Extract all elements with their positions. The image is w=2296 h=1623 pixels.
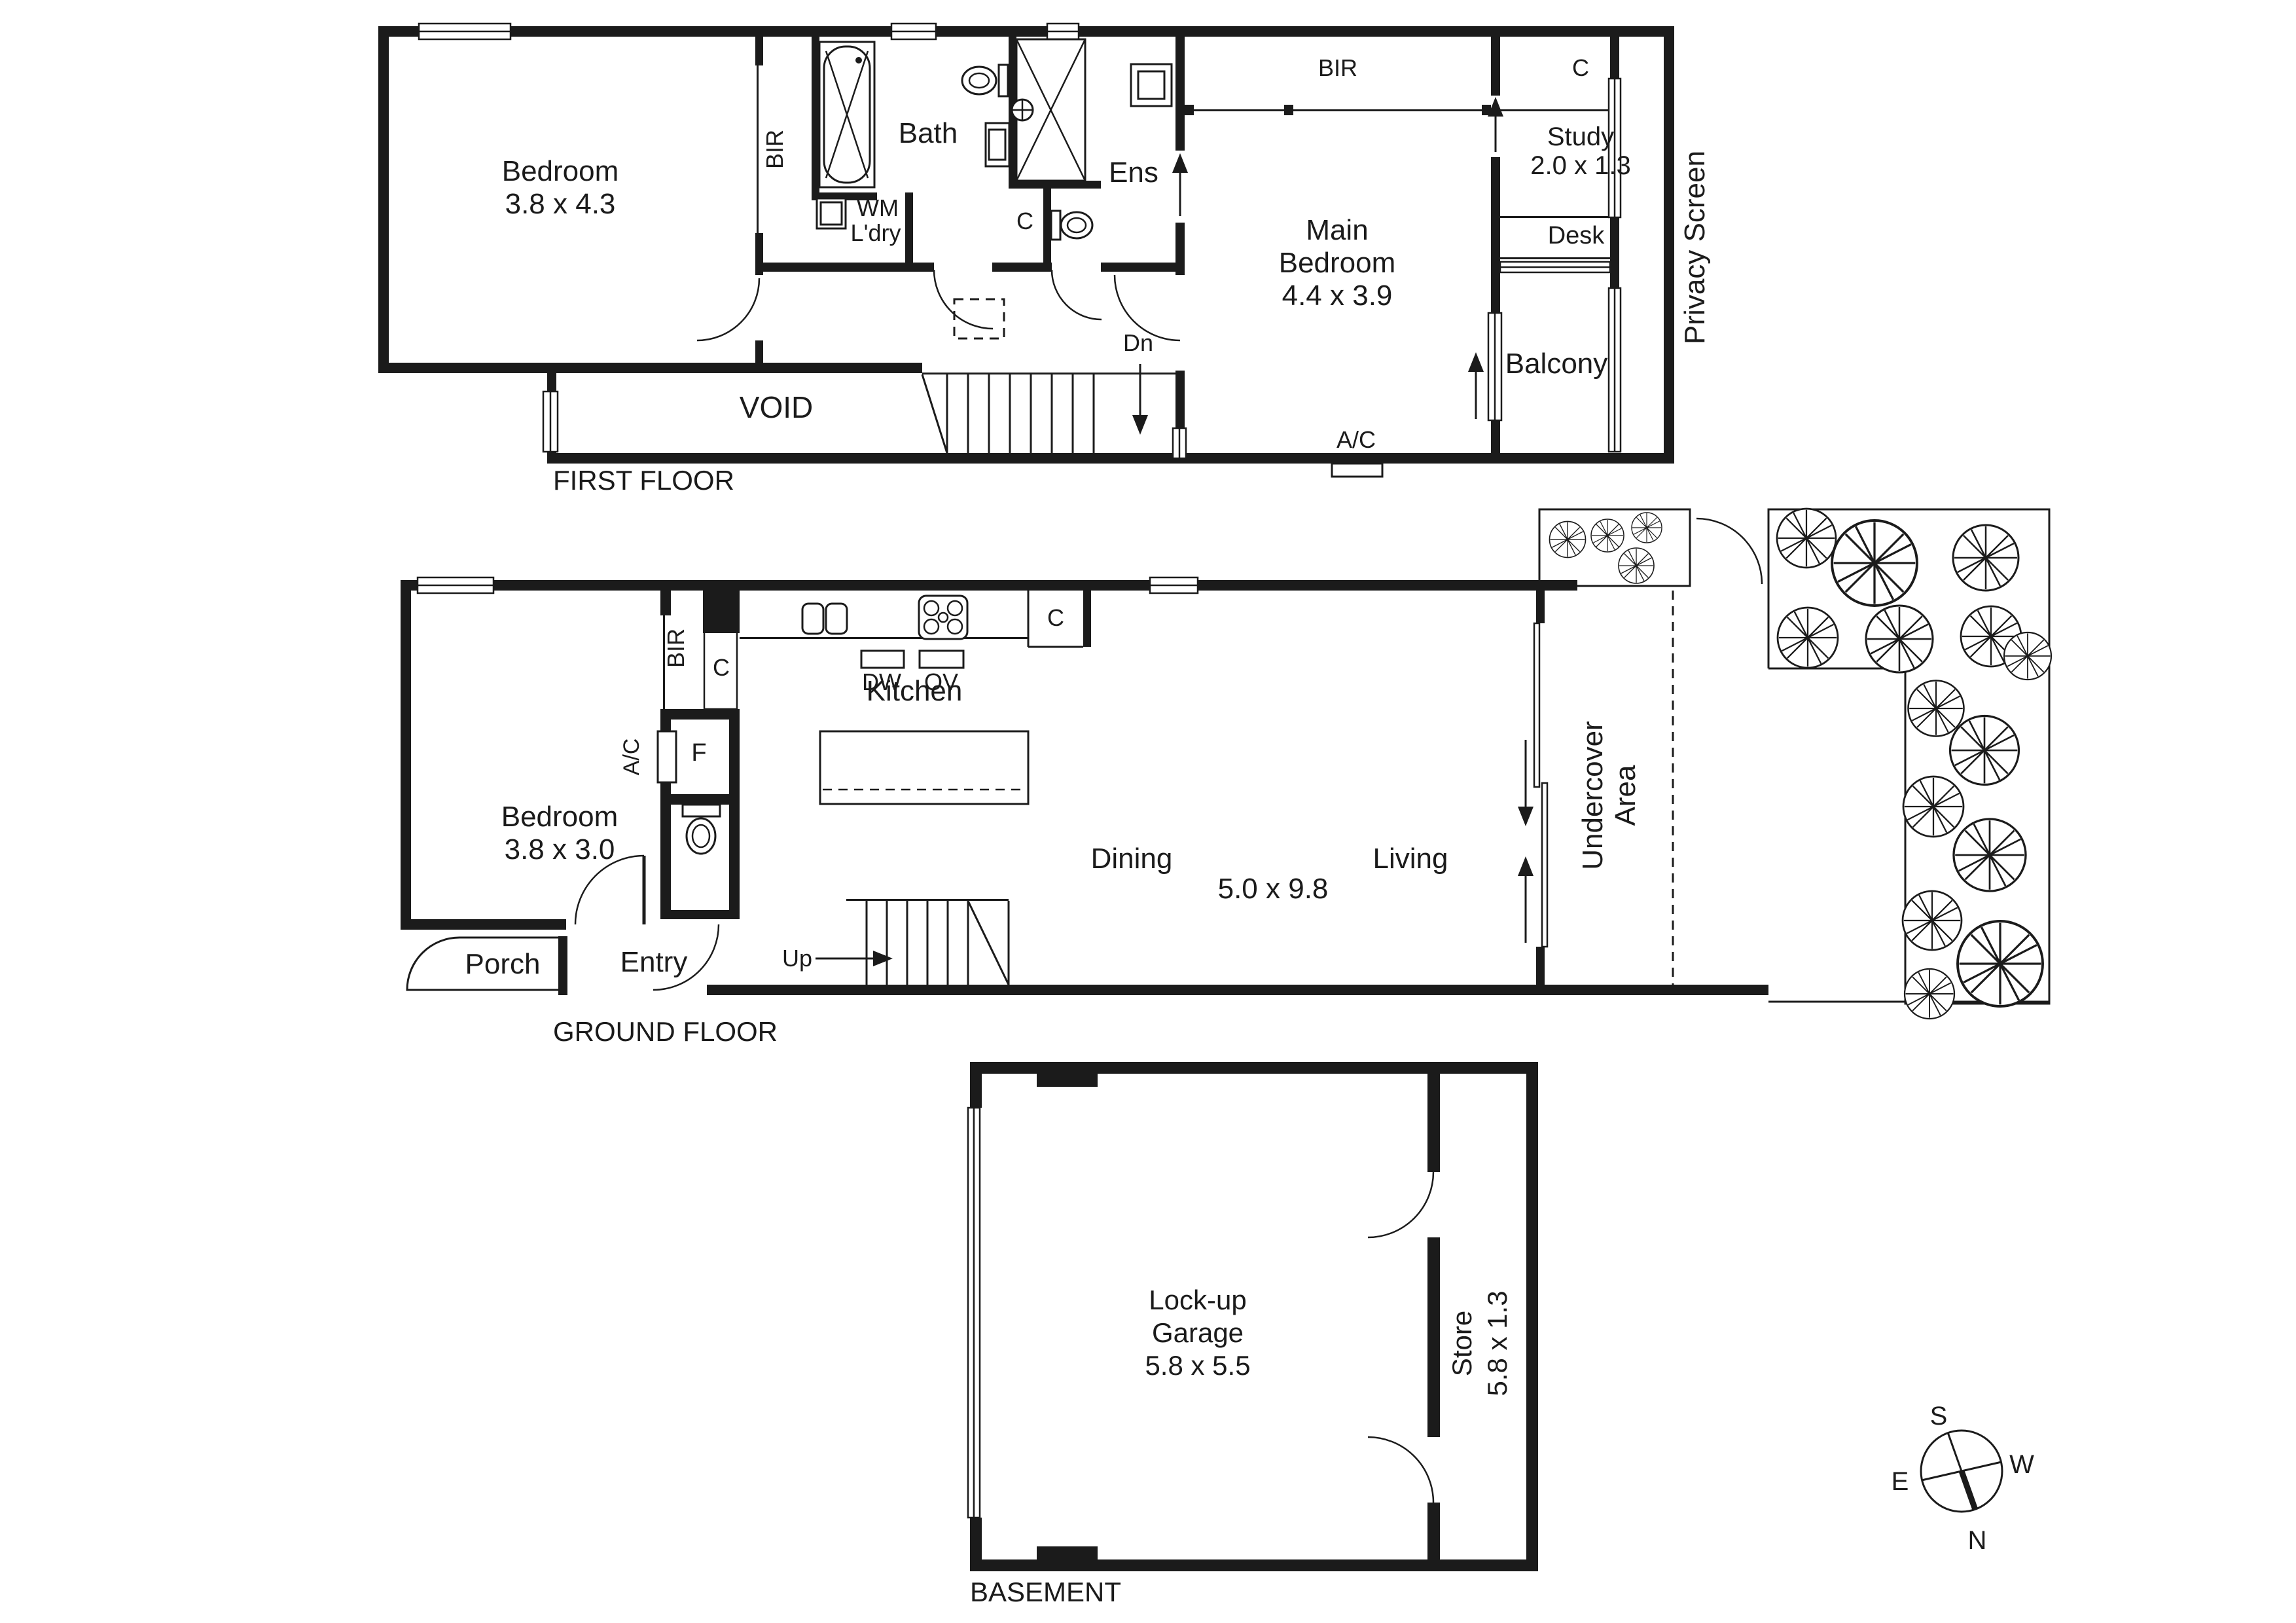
- gf-up-label: Up: [782, 945, 812, 972]
- tree-icon: [1905, 969, 1954, 1019]
- ff-tick: [1185, 105, 1194, 115]
- ff-wall: [1175, 37, 1185, 151]
- ground-floor-plan: Bedroom 3.8 x 3.0 BIR C A/C F Kitchen DW…: [401, 509, 2051, 1047]
- compass: S W E N: [1892, 1402, 2034, 1555]
- ff-balcony-label: Balcony: [1505, 348, 1608, 380]
- b-wall-bottom: [970, 1559, 1538, 1571]
- ff-wall: [1491, 157, 1500, 270]
- ff-privacy-screen-label: Privacy Screen: [1679, 151, 1711, 344]
- gf-closet-hall-label: C: [713, 654, 730, 681]
- ff-bir-left-label: BIR: [761, 130, 788, 169]
- dishwasher-icon: [861, 651, 904, 668]
- washing-machine-icon: [817, 198, 846, 228]
- ff-door-arcs: [697, 270, 1180, 340]
- ff-ac-label: A/C: [1336, 426, 1376, 453]
- tree-icon: [1632, 513, 1662, 543]
- gf-dining-label: Dining: [1091, 843, 1173, 875]
- gf-wall-left: [401, 580, 411, 930]
- gf-wall-bedroom-bottom: [401, 919, 566, 930]
- ff-desk-label: Desk: [1548, 222, 1605, 249]
- gf-entry-label: Entry: [620, 946, 688, 978]
- ff-wall: [755, 263, 934, 272]
- b-wall: [970, 1518, 982, 1571]
- gf-wall: [729, 805, 740, 919]
- ff-void-label: VOID: [740, 390, 813, 424]
- ff-main-bedroom-label-1: Main: [1306, 214, 1368, 246]
- ff-wall: [755, 37, 763, 65]
- b-wall: [970, 1062, 982, 1108]
- ff-wc-closet-label: C: [1016, 208, 1033, 234]
- b-garage-dims: 5.8 x 5.5: [1145, 1350, 1250, 1381]
- gf-ov-label: OV: [924, 668, 958, 695]
- ff-wall: [1491, 37, 1500, 96]
- tree-icon: [1954, 819, 2026, 891]
- gf-ac-unit: [658, 731, 676, 782]
- b-wall-store: [1427, 1074, 1440, 1172]
- bathtub-icon: [819, 42, 874, 187]
- gf-wall-bottom: [707, 985, 1577, 995]
- gf-sliding-doors: [1518, 591, 1547, 985]
- gf-wall: [671, 910, 740, 919]
- tree-icon: [1866, 606, 1933, 672]
- ff-ldry-label: L'dry: [851, 219, 901, 246]
- kitchen-island: [820, 731, 1028, 804]
- gf-wall: [660, 709, 740, 720]
- gf-stairs: [816, 899, 1009, 985]
- ff-wall: [1491, 420, 1500, 453]
- ff-wall: [1043, 189, 1051, 263]
- tree-icon: [1591, 519, 1624, 552]
- ff-wall: [1175, 223, 1185, 275]
- tree-icon: [1777, 509, 1836, 568]
- ff-wall: [905, 192, 913, 271]
- b-wall-store: [1427, 1503, 1440, 1559]
- ff-wall: [1101, 263, 1177, 272]
- ff-wall: [1009, 181, 1101, 189]
- gf-wall-mass: [703, 580, 740, 633]
- ff-study-label: Study: [1547, 122, 1614, 151]
- tree-icon: [1550, 522, 1586, 558]
- ff-bir-top-label: BIR: [1318, 54, 1357, 81]
- ff-wall: [1491, 270, 1500, 313]
- ff-wm-label: WM: [857, 194, 899, 221]
- ff-privacy-screen-wall: [1664, 26, 1674, 464]
- gf-wall-top: [401, 580, 1577, 591]
- compass-west-label: W: [2009, 1450, 2034, 1479]
- tree-icon: [1953, 525, 2018, 591]
- compass-north-needle: [1962, 1471, 1975, 1510]
- ff-floor-title: FIRST FLOOR: [553, 465, 734, 496]
- gf-porch-label: Porch: [465, 948, 541, 980]
- b-store-door-arc: [1368, 1172, 1433, 1237]
- tree-icon: [1903, 776, 1964, 837]
- gf-bir-label: BIR: [662, 629, 689, 668]
- gf-wall: [660, 580, 671, 615]
- ff-wall: [812, 37, 819, 200]
- ff-wall-bedroom-bottom: [378, 363, 922, 373]
- ff-desk-line: [1500, 216, 1610, 218]
- tree-icon: [1832, 520, 1917, 606]
- gf-bedroom-label: Bedroom: [501, 801, 619, 833]
- gf-wall: [660, 794, 740, 805]
- first-floor-plan: Bedroom 3.8 x 4.3 BIR Bath WM L'dry Ens …: [378, 24, 1711, 496]
- ff-wall-left: [378, 26, 389, 373]
- gf-toilet-icon: [683, 805, 720, 854]
- gf-undercover-label-2: Area: [1609, 765, 1641, 826]
- gf-dw-label: DW: [862, 668, 901, 695]
- tree-icon: [1903, 891, 1962, 950]
- b-wall-top: [970, 1062, 1538, 1074]
- b-wall-store: [1427, 1237, 1440, 1437]
- ff-main-bedroom-dims: 4.4 x 3.9: [1282, 280, 1393, 312]
- ff-closet-line: [1500, 109, 1610, 111]
- b-pier: [1037, 1546, 1098, 1559]
- ff-wall: [1610, 217, 1619, 288]
- ff-dn-label: Dn: [1123, 329, 1153, 356]
- ff-bedroom-label: Bedroom: [502, 155, 619, 187]
- b-store-door-arc: [1368, 1437, 1433, 1503]
- gf-closet-kitchen-label: C: [1047, 604, 1064, 631]
- ff-bir-front-line: [757, 65, 759, 233]
- ff-bir-line: [1185, 109, 1491, 111]
- gf-living-label: Living: [1373, 843, 1448, 875]
- floor-plan-drawing: Bedroom 3.8 x 4.3 BIR Bath WM L'dry Ens …: [0, 0, 2296, 1623]
- ff-ens-label: Ens: [1109, 156, 1158, 189]
- ff-wall: [1610, 37, 1619, 79]
- compass-south-line: [1948, 1432, 1962, 1471]
- ff-closet-top-label: C: [1572, 54, 1589, 81]
- ff-main-bedroom-label-2: Bedroom: [1279, 247, 1396, 279]
- compass-north-label: N: [1968, 1526, 1987, 1555]
- b-wall-right: [1526, 1062, 1538, 1571]
- ff-study-dims: 2.0 x 1.3: [1530, 151, 1630, 180]
- gf-undercover-label-1: Undercover: [1577, 721, 1609, 869]
- b-pier: [1037, 1074, 1098, 1087]
- tree-icon: [1778, 608, 1838, 668]
- gf-floor-title: GROUND FLOOR: [553, 1016, 778, 1047]
- basement-plan: Lock-up Garage 5.8 x 5.5 Store 5.8 x 1.3…: [968, 1062, 1538, 1607]
- gf-living-dims: 5.0 x 9.8: [1218, 873, 1329, 905]
- gf-ac-label: A/C: [619, 739, 644, 776]
- ff-wall: [755, 340, 763, 373]
- ff-bedroom-dims: 3.8 x 4.3: [505, 188, 616, 220]
- b-store-dims: 5.8 x 1.3: [1482, 1290, 1513, 1396]
- ff-ac-unit: [1332, 464, 1382, 477]
- shower-icon: [1012, 39, 1085, 181]
- gf-fridge-label: F: [691, 739, 706, 767]
- wc-toilet-icon: [1051, 211, 1092, 240]
- tree-icon: [1909, 681, 1964, 737]
- gf-wall-porch: [558, 936, 567, 995]
- b-floor-title: BASEMENT: [970, 1577, 1121, 1607]
- garage-door: [968, 1108, 980, 1518]
- b-garage-label-2: Garage: [1152, 1317, 1244, 1348]
- gf-wall: [729, 720, 740, 794]
- compass-east-label: E: [1892, 1467, 1909, 1496]
- bath-vanity-icon: [986, 123, 1009, 166]
- tree-icon: [1950, 716, 2019, 785]
- tree-icon: [2004, 632, 2051, 680]
- ff-desk-line: [1500, 257, 1610, 259]
- ff-tick: [1284, 105, 1293, 115]
- b-garage-label-1: Lock-up: [1149, 1285, 1246, 1315]
- gf-wall-bottom-undercover: [1577, 985, 1768, 995]
- ff-wall: [1175, 371, 1185, 429]
- gf-bedroom-dims: 3.8 x 3.0: [505, 833, 615, 866]
- compass-south-label: S: [1930, 1402, 1948, 1431]
- bath-toilet-icon: [962, 65, 1008, 96]
- tree-icon: [1958, 921, 2043, 1006]
- oven-icon: [920, 651, 963, 668]
- tree-icon: [1619, 548, 1654, 583]
- floorplan-sheet: Bedroom 3.8 x 4.3 BIR Bath WM L'dry Ens …: [0, 0, 2296, 1623]
- ff-wall: [992, 263, 1052, 272]
- ff-wall-top: [378, 26, 1674, 37]
- b-store-label: Store: [1446, 1311, 1477, 1376]
- ens-vanity-icon: [1131, 64, 1172, 106]
- ff-wall-bottom: [547, 453, 1674, 464]
- ff-bath-label: Bath: [899, 117, 958, 149]
